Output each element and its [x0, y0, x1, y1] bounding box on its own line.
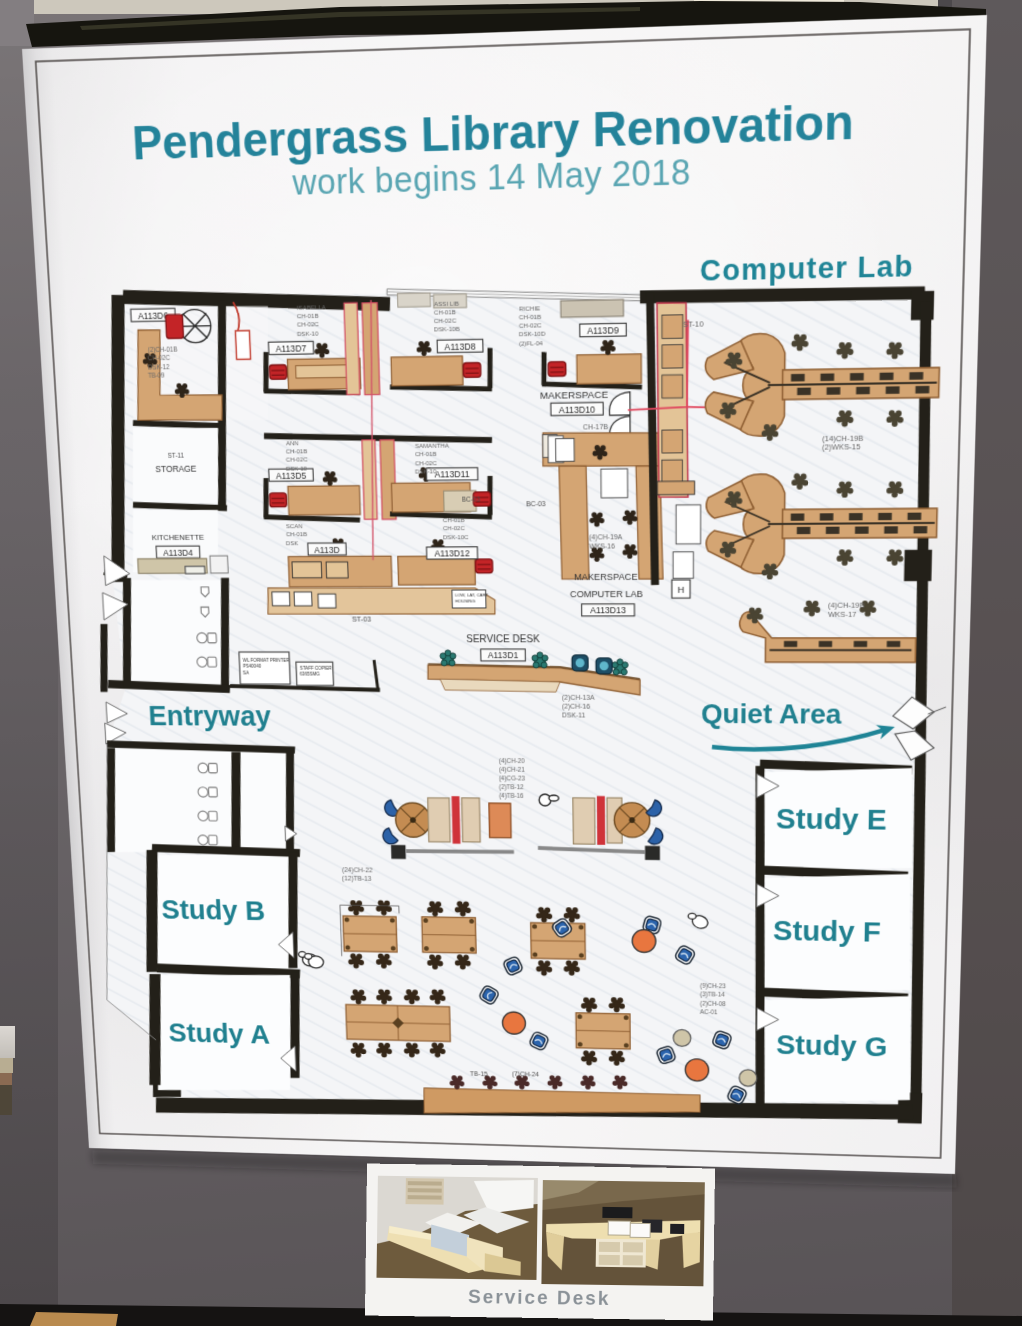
svg-text:MAKERSPACE: MAKERSPACE: [540, 390, 608, 402]
svg-text:(3)TB-14: (3)TB-14: [700, 992, 725, 999]
svg-text:CH-01B: CH-01B: [415, 451, 437, 458]
svg-text:DSK-10B: DSK-10B: [434, 326, 460, 334]
svg-text:RICHIE: RICHIE: [519, 306, 540, 314]
svg-text:ST-11: ST-11: [168, 453, 185, 460]
svg-text:CH-01B: CH-01B: [519, 314, 541, 322]
svg-text:PS40040: PS40040: [243, 664, 262, 670]
svg-text:(4)CG-23: (4)CG-23: [499, 776, 525, 783]
svg-text:LOW, LAT, CART: LOW, LAT, CART: [455, 593, 489, 598]
svg-text:BC-03: BC-03: [526, 500, 546, 508]
svg-text:CH-01B: CH-01B: [286, 449, 308, 456]
svg-text:CH-02C: CH-02C: [286, 457, 308, 464]
svg-text:SAMANTHA: SAMANTHA: [415, 443, 450, 450]
svg-text:Study F: Study F: [773, 915, 881, 948]
svg-text:DSK: DSK: [286, 540, 299, 547]
svg-text:(4)TB-16: (4)TB-16: [499, 793, 524, 800]
svg-text:CH-02C: CH-02C: [415, 460, 438, 467]
svg-text:(2)TB-12: (2)TB-12: [499, 784, 524, 791]
svg-text:A113D: A113D: [314, 545, 340, 555]
svg-text:(24)CH-22: (24)CH-22: [342, 867, 373, 875]
svg-text:KITCHENETTE: KITCHENETTE: [152, 533, 205, 542]
svg-text:SA: SA: [243, 670, 250, 676]
svg-text:ASSI LIB: ASSI LIB: [434, 300, 459, 308]
svg-text:A113D7: A113D7: [276, 343, 307, 353]
svg-text:(2)WKS-15: (2)WKS-15: [822, 442, 860, 452]
svg-text:(2)FL-04: (2)FL-04: [519, 340, 543, 347]
svg-text:CH-02C: CH-02C: [519, 323, 542, 331]
svg-text:DSK-10D: DSK-10D: [519, 331, 546, 339]
svg-text:SERVICE DESK: SERVICE DESK: [466, 633, 540, 644]
svg-text:(4)CH-19B: (4)CH-19B: [828, 601, 865, 610]
svg-text:DSK-12: DSK-12: [148, 364, 170, 371]
svg-text:COMPUTER LAB: COMPUTER LAB: [570, 589, 643, 600]
svg-text:A113D10: A113D10: [559, 404, 595, 414]
svg-text:(12)TB-13: (12)TB-13: [342, 875, 372, 883]
svg-text:6365SMG: 6365SMG: [300, 672, 320, 678]
svg-text:DSK-11: DSK-11: [562, 712, 585, 720]
svg-text:STAFF COPIER: STAFF COPIER: [300, 666, 333, 672]
svg-text:(4)CH-20: (4)CH-20: [499, 758, 525, 765]
svg-text:A113D6: A113D6: [138, 310, 169, 321]
svg-text:(2)CH-13A: (2)CH-13A: [562, 694, 595, 702]
svg-text:DSK-10: DSK-10: [415, 469, 437, 476]
svg-text:ISABELLA: ISABELLA: [297, 304, 327, 312]
svg-text:Quiet Area: Quiet Area: [701, 699, 843, 730]
svg-text:(2)CH-08: (2)CH-08: [700, 1001, 726, 1008]
svg-text:Study E: Study E: [776, 803, 887, 836]
svg-text:ANN: ANN: [286, 440, 299, 447]
svg-text:(9)CH-23: (9)CH-23: [700, 983, 726, 990]
svg-text:A113D9: A113D9: [587, 325, 619, 336]
svg-text:A113D12: A113D12: [434, 549, 470, 559]
svg-text:HOUSING: HOUSING: [455, 599, 476, 604]
svg-text:CH-01B: CH-01B: [443, 517, 465, 524]
svg-text:Study G: Study G: [776, 1030, 888, 1063]
svg-text:A113D13: A113D13: [590, 606, 626, 616]
svg-text:CH-02C: CH-02C: [297, 322, 320, 329]
svg-text:TB-15: TB-15: [470, 1071, 488, 1078]
svg-text:DSK-10: DSK-10: [297, 330, 319, 337]
svg-text:Study B: Study B: [161, 895, 266, 927]
svg-text:Study A: Study A: [168, 1018, 271, 1050]
svg-text:Entryway: Entryway: [148, 701, 272, 732]
svg-text:(4)CH-19A: (4)CH-19A: [589, 534, 623, 542]
svg-text:WKS-16: WKS-16: [589, 543, 615, 551]
svg-text:CH-02C: CH-02C: [443, 526, 465, 533]
svg-text:DSK-10: DSK-10: [286, 466, 308, 473]
svg-text:ST-10: ST-10: [683, 319, 704, 329]
svg-text:(4)CH-21: (4)CH-21: [499, 767, 525, 774]
svg-text:A113D11: A113D11: [434, 470, 469, 480]
svg-text:H: H: [678, 585, 685, 595]
svg-text:CH-01B: CH-01B: [297, 313, 319, 320]
svg-text:ST-03: ST-03: [352, 615, 372, 624]
svg-text:(2)CH-16: (2)CH-16: [562, 703, 590, 711]
svg-text:(7)CH-24: (7)CH-24: [512, 1071, 539, 1079]
svg-text:Computer Lab: Computer Lab: [700, 250, 914, 288]
svg-text:BC-03: BC-03: [462, 497, 481, 504]
svg-text:CH-17B: CH-17B: [583, 424, 608, 432]
svg-text:(2)CH-01B: (2)CH-01B: [148, 347, 178, 354]
svg-text:TB-09: TB-09: [148, 373, 165, 380]
svg-text:A113D4: A113D4: [163, 548, 193, 558]
svg-text:CH-02C: CH-02C: [148, 355, 171, 362]
svg-text:DSK-10C: DSK-10C: [443, 534, 469, 541]
svg-text:A113D8: A113D8: [444, 341, 475, 352]
svg-text:CH-01B: CH-01B: [286, 532, 307, 539]
svg-text:WKS-17: WKS-17: [828, 610, 857, 619]
svg-text:CH-02C: CH-02C: [434, 318, 457, 325]
svg-text:CH-01B: CH-01B: [434, 309, 456, 317]
svg-text:SCAN: SCAN: [286, 523, 303, 530]
svg-text:MAKERSPACE: MAKERSPACE: [574, 572, 638, 583]
svg-text:STORAGE: STORAGE: [155, 464, 197, 474]
svg-text:AC-01: AC-01: [700, 1009, 718, 1016]
svg-text:WL FORMAT PRINTER: WL FORMAT PRINTER: [243, 658, 290, 664]
svg-text:A113D1: A113D1: [488, 651, 519, 661]
